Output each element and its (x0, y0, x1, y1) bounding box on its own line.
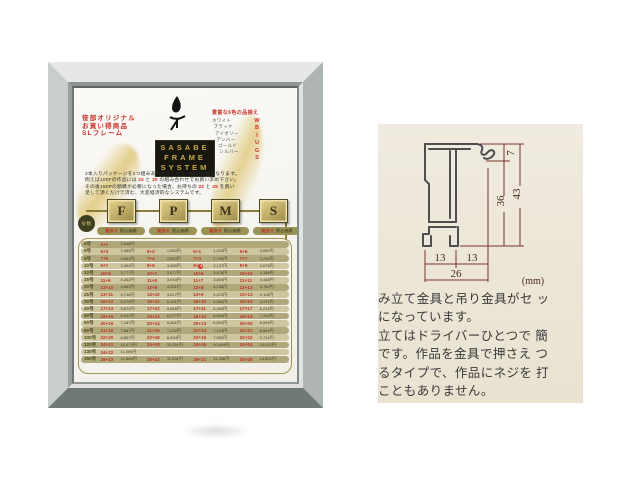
price-cell: 4+12,048円 (100, 241, 146, 247)
combo-value: 20+13 (193, 321, 213, 326)
combo-value: 17+11 (193, 306, 213, 311)
price-cell: 21+187,867円 (100, 328, 146, 334)
combo-value: 11+9 (100, 278, 120, 283)
price-cell: 12+84,138円 (193, 284, 239, 290)
price-value: 14,852円 (260, 356, 276, 362)
combo-value: 12+8 (193, 285, 213, 290)
promo-line: SLフレーム (82, 130, 136, 138)
price-value: 2,048円 (120, 241, 134, 247)
combo-value: 25+25 (240, 357, 260, 362)
price-cell: 11+73,844円 (193, 277, 239, 283)
price-value: 4,138円 (213, 284, 227, 290)
combo-value: 20+20 (240, 321, 260, 326)
intro-segment: 足して頂くだけで済む、大変経済的なシステムです。 (85, 191, 204, 196)
table-row: 130号24+2211,090円 (81, 349, 289, 356)
price-value: 6,277円 (167, 313, 181, 319)
price-value: 3,777円 (120, 270, 134, 276)
price-cell: 19+156,942円 (100, 313, 146, 319)
table-row: 4号4+12,048円 (81, 241, 289, 248)
price-value: 11,051円 (167, 342, 183, 348)
logo-line: FRAME (156, 153, 214, 163)
price-cell: 25+2111,286円 (193, 356, 239, 362)
combo-value: 24+21 (100, 342, 120, 347)
price-cell: 22+208,857円 (100, 335, 146, 341)
price-cell: 12+104,653円 (100, 284, 146, 290)
table-row: 150号25+2312,884円25+2211,831円25+2111,286円… (81, 356, 289, 363)
combo-value: 22+18 (147, 335, 167, 340)
price-cell: 24+1811,051円 (147, 342, 193, 348)
promo-text: 笹部オリジナルお買い得商品SLフレーム (82, 115, 136, 138)
combo-value: 22+22 (240, 335, 260, 340)
intro-segment: 2本入りパッケージを2つ組みあわせることで一組の額縁となります。 (85, 172, 240, 177)
price-cell: 24+2412,012円 (240, 342, 286, 348)
table-row: 10号9+73,464円9+63,365円9+43,137円9+93,678円 (81, 263, 289, 270)
header-combo-label: 組合せ (261, 228, 274, 234)
table-row: 60号20+167,187円20+146,861円20+136,594円20+2… (81, 320, 289, 327)
combo-value: 21+14 (193, 328, 213, 333)
price-value: 8,857円 (120, 335, 134, 341)
price-value: 5,274円 (120, 299, 134, 305)
price-cell: 7+52,961円 (100, 256, 146, 262)
price-value: 2,961円 (120, 256, 134, 262)
combo-value: 15+11 (147, 299, 167, 304)
price-cell: 10+73,677円 (147, 270, 193, 276)
price-cell: 10+104,158円 (240, 270, 286, 276)
price-value: 5,264円 (213, 306, 227, 312)
color-name: シルバー (220, 149, 253, 155)
color-letter: I (252, 133, 262, 140)
size-label: 60号 (84, 320, 100, 326)
table-row: 25号13+114,746円13+104,617円13+94,474円13+13… (81, 291, 289, 298)
table-row: 100号22+208,857円22+188,534円22+167,952円22+… (81, 334, 289, 341)
table-row: 30号15+125,274円15+115,161円15+104,984円15+1… (81, 299, 289, 306)
price-cell: 20+208,094円 (240, 320, 286, 326)
torch-logo-icon (166, 95, 188, 133)
price-value: 5,974円 (260, 299, 274, 305)
price-value: 10,094円 (213, 342, 229, 348)
price-value: 6,064円 (213, 313, 227, 319)
combo-value: 24+18 (147, 342, 167, 347)
dim-13-left-label: 13 (435, 252, 447, 264)
header-combo-label: 組合せ (157, 228, 170, 234)
price-value: 4,448円 (260, 277, 274, 283)
size-label: 15号 (84, 277, 100, 283)
price-value: 11,831円 (167, 356, 183, 362)
price-cell: 22+167,952円 (193, 335, 239, 341)
combo-value: 10+10 (240, 271, 260, 276)
price-value: 4,251円 (167, 284, 181, 290)
price-value: 6,942円 (120, 313, 134, 319)
price-value: 7,187円 (120, 320, 134, 326)
combo-value: 13+11 (100, 292, 120, 297)
combo-value: 7+7 (240, 256, 260, 261)
price-value: 4,262円 (120, 277, 134, 283)
logo-line: SASABE (156, 143, 214, 153)
price-cell: 13+135,118円 (240, 292, 286, 298)
size-label: 40号 (84, 306, 100, 312)
size-label: 6号 (84, 248, 100, 254)
price-cell: 19+136,277円 (147, 313, 193, 319)
price-value: 4,474円 (213, 292, 227, 298)
table-row: 40号17+135,872円17+125,846円17+115,264円17+1… (81, 306, 289, 313)
color-lineup: 豊富な6色の品揃え ホワイトブラックアイボリーアンバーゴールドシルバー WBIU… (212, 109, 284, 162)
combo-value: 11+7 (193, 278, 213, 283)
color-name-list: ホワイトブラックアイボリーアンバーゴールドシルバー (212, 118, 252, 162)
price-value: 12,012円 (260, 342, 276, 348)
price-cell: 13+114,746円 (100, 292, 146, 298)
highlight-dot: 4 (198, 264, 203, 269)
price-value: 8,554円 (260, 328, 274, 334)
combo-value: 7+5 (100, 256, 120, 261)
price-cell: 13+104,617円 (147, 292, 193, 298)
price-value: 8,094円 (260, 320, 274, 326)
price-table: 4号4+12,048円6号6+31,965円6+21,950円6+11,424円… (78, 238, 292, 374)
price-value: 4,653円 (120, 284, 134, 290)
price-value: 6,594円 (213, 320, 227, 326)
combo-value: 13+10 (147, 292, 167, 297)
color-lineup-header: 豊富な6色の品揃え (212, 109, 284, 116)
price-cell: 7+32,790円 (193, 256, 239, 262)
dim-7-label: 7 (505, 150, 517, 156)
combo-value: 13+9 (193, 292, 213, 297)
price-cell: 20+136,594円 (193, 320, 239, 326)
series-tile-m: M (211, 199, 240, 223)
price-cell: 21+147,194円 (193, 328, 239, 334)
combo-value: 10+8 (100, 271, 120, 276)
price-cell: 20+146,861円 (147, 320, 193, 326)
price-cell: 17+135,872円 (100, 306, 146, 312)
size-label: 80号 (84, 328, 100, 334)
size-label: 25号 (84, 292, 100, 298)
price-value: 11,286円 (213, 356, 229, 362)
combo-value: 15+10 (193, 299, 213, 304)
price-value: 3,290円 (260, 256, 274, 262)
price-value: 3,678円 (260, 263, 274, 269)
price-cell: 11+94,262円 (100, 277, 146, 283)
price-value: 5,872円 (120, 306, 134, 312)
price-value: 3,137円 (213, 263, 227, 269)
description-line: になっています。 (378, 308, 583, 326)
combo-value: 10+7 (147, 271, 167, 276)
price-cell: 12+94,251円 (147, 284, 193, 290)
size-label: 130号 (84, 349, 100, 355)
size-label: 12号 (84, 270, 100, 276)
color-letter: G (252, 148, 262, 155)
combo-value: 7+4 (147, 256, 167, 261)
price-cell: 6+63,050円 (240, 248, 286, 254)
combo-value: 6+3 (100, 249, 120, 254)
combo-value: 24+22 (100, 350, 120, 355)
combo-value: 6+1 (193, 249, 213, 254)
price-cell: 9+73,464円 (100, 263, 146, 269)
price-cell: 19+197,418円 (240, 313, 286, 319)
price-value: 1,950円 (167, 248, 181, 254)
price-cell: 11+83,944円 (147, 277, 193, 283)
price-value: 3,050円 (260, 248, 274, 254)
description-line: 立てはドライバーひとつで 簡 (378, 327, 583, 345)
combo-value: 11+11 (240, 278, 260, 283)
combo-value: 6+2 (147, 249, 167, 254)
combo-value: 21+21 (240, 328, 260, 333)
combo-value: 7+3 (193, 256, 213, 261)
description-line: です。作品を金具で押さえ つ (378, 345, 583, 363)
price-value: 6,861円 (167, 320, 181, 326)
price-value: 7,194円 (213, 328, 227, 334)
price-cell: 21+218,554円 (240, 328, 286, 334)
size-label: 20号 (84, 284, 100, 290)
size-label: 150号 (84, 356, 100, 362)
price-value: 7,952円 (213, 335, 227, 341)
combo-value: 9+7 (100, 263, 120, 268)
header-price-label: 税込価格 (224, 228, 241, 234)
combo-value: 9+4 (193, 263, 213, 269)
table-row: 50号19+156,942円19+136,277円19+126,064円19+1… (81, 313, 289, 320)
price-cell: 7+73,290円 (240, 256, 286, 262)
price-value: 4,984円 (213, 299, 227, 305)
table-row: 12号10+83,777円10+73,677円10+63,578円10+104,… (81, 270, 289, 277)
intro-line: 足して頂くだけで済む、大変経済的なシステムです。 (85, 191, 287, 197)
spec-panel: 7 36 43 13 13 26 (mm) み立て金具と吊り金具がセ ッになって… (378, 124, 583, 403)
price-cell: 15+104,984円 (193, 299, 239, 305)
price-cell: 13+94,474円 (193, 292, 239, 298)
assembly-description-text: み立て金具と吊り金具がセ ッになっています。立てはドライバーひとつで 簡です。作… (378, 290, 583, 400)
price-cell: 17+115,264円 (193, 306, 239, 312)
price-cell: 9+43,137円 (193, 263, 239, 269)
size-label: 50号 (84, 313, 100, 319)
series-tile-s: S (259, 199, 288, 223)
combo-value: 22+20 (100, 335, 120, 340)
color-letter: U (252, 140, 262, 147)
combo-value: 24+16 (193, 342, 213, 347)
price-cell: 19+126,064円 (193, 313, 239, 319)
intro-segment: を買い (218, 185, 235, 190)
price-cell: 9+93,678円 (240, 263, 286, 269)
color-letter: B (252, 125, 262, 132)
price-cell: 7+42,853円 (147, 256, 193, 262)
combo-value: 9+6 (147, 263, 167, 268)
combo-value: 20+14 (147, 321, 167, 326)
combo-value: 10+6 (193, 271, 213, 276)
price-value: 1,424円 (213, 248, 227, 254)
dim-43-label: 43 (511, 188, 523, 200)
table-row: 15号11+94,262円11+83,944円11+73,844円11+114,… (81, 277, 289, 284)
column-header-f: 組合せ税込価格 (97, 227, 145, 235)
combo-value: 17+13 (100, 306, 120, 311)
price-value: 3,365円 (167, 263, 181, 269)
table-row: 120号24+2110,473円24+1811,051円24+1610,094円… (81, 342, 289, 349)
intro-segment: 例えば100Fの作品には (85, 178, 138, 183)
combo-value: 6+6 (240, 249, 260, 254)
price-cell: 22+188,534円 (147, 335, 193, 341)
combo-value: 25+21 (193, 357, 213, 362)
header-price-label: 税込価格 (276, 228, 293, 234)
price-cell: 10+83,777円 (100, 270, 146, 276)
price-value: 4,158円 (260, 270, 274, 276)
series-tile-f: F (107, 199, 136, 223)
table-row: 20号12+104,653円12+94,251円12+84,138円12+124… (81, 284, 289, 291)
price-value: 1,965円 (120, 248, 134, 254)
price-cell: 6+11,424円 (193, 248, 239, 254)
combo-value: 21+16 (147, 328, 167, 333)
price-value: 4,617円 (167, 292, 181, 298)
combo-value: 12+10 (100, 285, 120, 290)
dim-unit-label: (mm) (522, 276, 544, 287)
price-cell: 25+2312,884円 (100, 356, 146, 362)
combo-value: 25+23 (100, 357, 120, 362)
price-cell: 21+167,432円 (147, 328, 193, 334)
price-value: 7,418円 (260, 313, 274, 319)
size-number-badge: 号数 (78, 215, 95, 232)
combo-value: 17+12 (147, 306, 167, 311)
intro-segment: と (144, 178, 152, 183)
price-value: 4,746円 (120, 292, 134, 298)
size-label: 8号 (84, 256, 100, 262)
price-value: 2,853円 (167, 256, 181, 262)
price-value: 5,161円 (167, 299, 181, 305)
combo-value: 17+17 (240, 306, 260, 311)
promo-line: 笹部オリジナル (82, 115, 136, 123)
combo-value: 13+13 (240, 292, 260, 297)
series-tile-p: P (159, 199, 188, 223)
price-cell: 20+167,187円 (100, 320, 146, 326)
price-cell: 15+155,974円 (240, 299, 286, 305)
intro-segment: その後150Pの額縁が必要になった場合、お持ちの (85, 185, 198, 190)
price-value: 8,534円 (167, 335, 181, 341)
price-value: 5,118円 (260, 292, 274, 298)
combo-value: 15+12 (100, 299, 120, 304)
price-value: 5,846円 (167, 306, 181, 312)
price-cell: 12+124,782円 (240, 284, 286, 290)
description-line: こともありません。 (378, 382, 583, 400)
size-label: 4号 (84, 241, 100, 247)
combo-value: 24+24 (240, 342, 260, 347)
header-combo-label: 組合せ (209, 228, 222, 234)
price-value: 4,782円 (260, 284, 274, 290)
price-cell: 11+114,448円 (240, 277, 286, 283)
price-cell: 17+176,214円 (240, 306, 286, 312)
combo-value: 19+13 (147, 314, 167, 319)
size-label: 10号 (84, 263, 100, 269)
price-cell: 24+1610,094円 (193, 342, 239, 348)
price-cell: 6+31,965円 (100, 248, 146, 254)
price-cell: 25+2514,852円 (240, 356, 286, 362)
combo-value: 19+12 (193, 314, 213, 319)
poster-insert: 笹部オリジナルお買い得商品SLフレーム 豊富な6色の品揃え ホワイトブラックアイ… (74, 88, 297, 382)
header-combo-label: 組合せ (105, 228, 118, 234)
price-cell: 22+229,714円 (240, 335, 286, 341)
combo-value: 15+15 (240, 299, 260, 304)
profile-cross-section-diagram: 7 36 43 13 13 26 (mm) (378, 124, 583, 290)
size-label: 30号 (84, 299, 100, 305)
price-cell: 15+125,274円 (100, 299, 146, 305)
dim-36-label: 36 (495, 195, 507, 207)
table-row: 6号6+31,965円6+21,950円6+11,424円6+63,050円 (81, 248, 289, 255)
combo-value: 25+22 (147, 357, 167, 362)
price-cell: 24+2211,090円 (100, 349, 146, 355)
header-price-label: 税込価格 (172, 228, 189, 234)
price-cell: 24+2110,473円 (100, 342, 146, 348)
price-cell: 17+125,846円 (147, 306, 193, 312)
price-value: 12,884円 (120, 356, 136, 362)
table-row: 80号21+187,867円21+167,432円21+147,194円21+2… (81, 327, 289, 334)
price-value: 7,432円 (167, 328, 181, 334)
system-description-text: 2本入りパッケージを2つ組みあわせることで一組の額縁となります。例えば100Fの… (85, 172, 287, 198)
price-value: 11,090円 (120, 349, 136, 355)
size-label: 100号 (84, 335, 100, 341)
dim-13-right-label: 13 (467, 252, 479, 264)
color-letter: S (252, 155, 262, 162)
combo-value: 19+15 (100, 314, 120, 319)
combo-value: 12+9 (147, 285, 167, 290)
price-value: 3,944円 (167, 277, 181, 283)
price-cell: 10+63,578円 (193, 270, 239, 276)
price-cell: 15+115,161円 (147, 299, 193, 305)
combo-value: 9+9 (240, 263, 260, 268)
price-value: 3,844円 (213, 277, 227, 283)
description-line: るタイプで、作品にネジを 打 (378, 364, 583, 382)
price-value: 3,677円 (167, 270, 181, 276)
frame-product-photo: 笹部オリジナルお買い得商品SLフレーム 豊富な6色の品揃え ホワイトブラックアイ… (48, 62, 323, 408)
price-cell: 6+21,950円 (147, 248, 193, 254)
table-row: 8号7+52,961円7+42,853円7+32,790円7+73,290円 (81, 255, 289, 262)
description-line: み立て金具と吊り金具がセ ッ (378, 290, 583, 308)
column-header-s: 組合せ税込価格 (253, 227, 297, 235)
price-cell: 25+2211,831円 (147, 356, 193, 362)
combo-value: 11+8 (147, 278, 167, 283)
column-header-m: 組合せ税込価格 (201, 227, 249, 235)
combo-value: 20+16 (100, 321, 120, 326)
combo-value: 21+18 (100, 328, 120, 333)
price-value: 10,473円 (120, 342, 136, 348)
price-value: 2,790円 (213, 256, 227, 262)
price-value: 3,464円 (120, 263, 134, 269)
combo-value: 12+12 (240, 285, 260, 290)
price-value: 7,867円 (120, 328, 134, 334)
drop-shadow (180, 424, 252, 438)
combo-value: 4+1 (100, 242, 120, 247)
combo-value: 22+16 (193, 335, 213, 340)
column-header-p: 組合せ税込価格 (149, 227, 197, 235)
price-value: 6,214円 (260, 306, 274, 312)
dim-26-label: 26 (451, 268, 463, 280)
price-cell: 9+63,365円 (147, 263, 193, 269)
intro-segment: の組み合わせでお買い求め下さい。 (158, 178, 240, 183)
price-value: 3,578円 (213, 270, 227, 276)
color-letter: W (252, 118, 262, 125)
price-value: 9,714円 (260, 335, 274, 341)
color-letter-list: WBIUGS (252, 118, 262, 162)
header-price-label: 税込価格 (120, 228, 137, 234)
combo-value: 19+19 (240, 314, 260, 319)
size-label: 120号 (84, 342, 100, 348)
